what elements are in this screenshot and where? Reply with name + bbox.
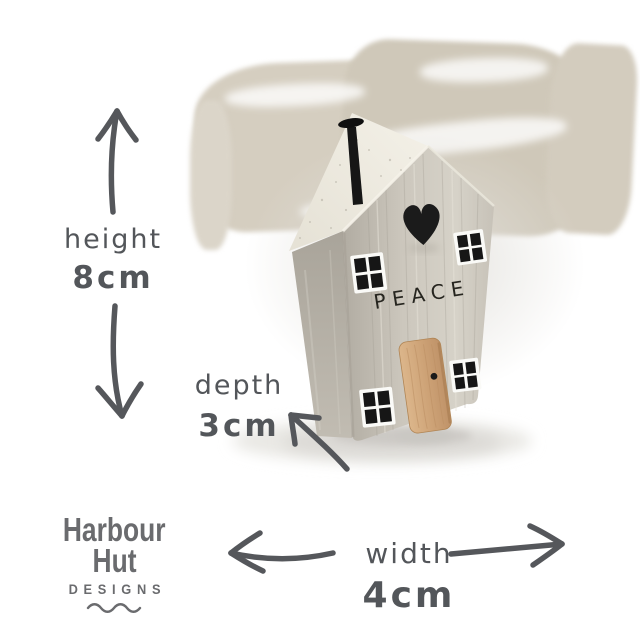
logo-wave-icon (85, 600, 143, 614)
depth-label: depth (172, 370, 306, 401)
brand-name-line2: Hut (92, 545, 136, 576)
brand-name-line1: Harbour (63, 514, 166, 545)
width-arrow-left (231, 533, 333, 571)
width-label: width (338, 537, 480, 570)
height-label: height (40, 224, 186, 255)
product-dimension-image: PEACE (0, 0, 640, 640)
brand-logo: Harbour Hut DESIGNS (38, 514, 190, 614)
width-value: 4cm (338, 575, 480, 616)
depth-value: 3cm (172, 408, 306, 444)
height-value: 8cm (40, 260, 186, 296)
brand-name-line3: DESIGNS (68, 584, 166, 597)
height-arrow-down (98, 306, 141, 416)
height-arrow-up (98, 111, 136, 212)
